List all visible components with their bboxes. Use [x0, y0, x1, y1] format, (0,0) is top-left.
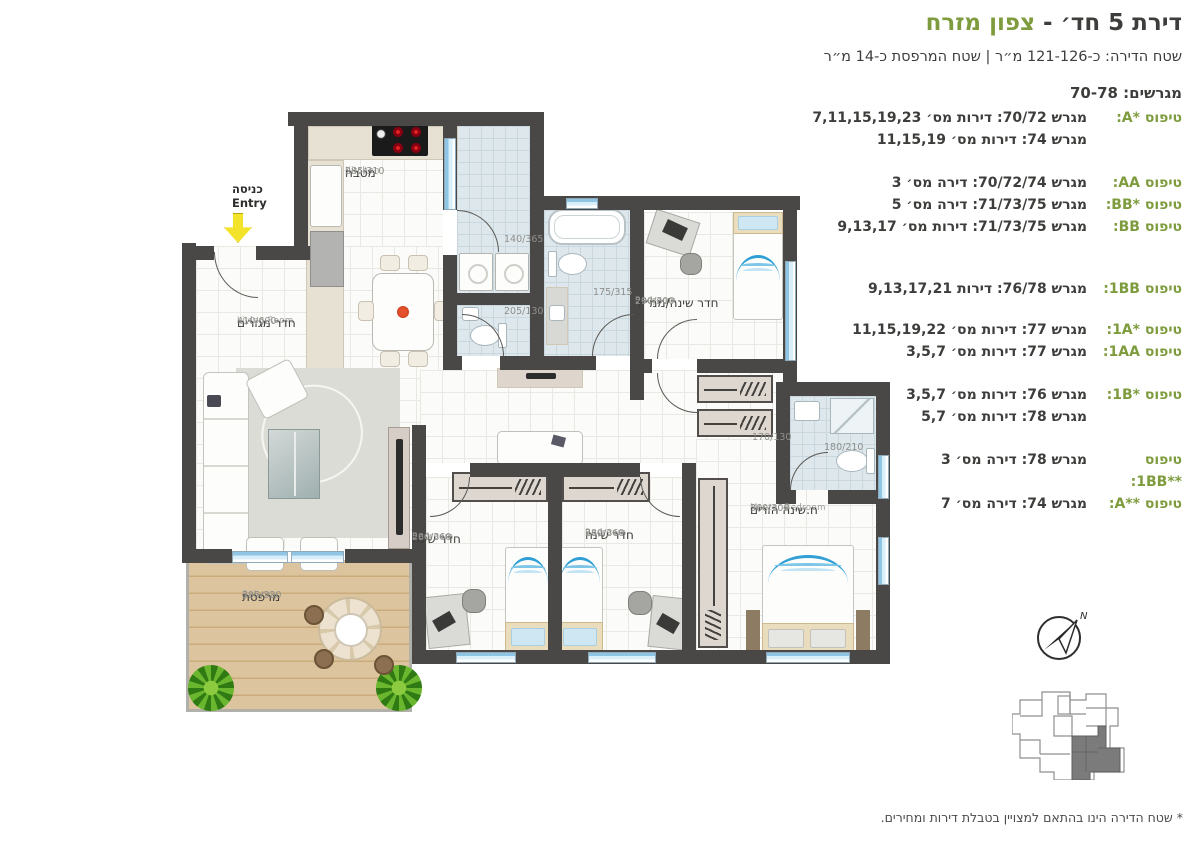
desk-chair — [628, 591, 652, 615]
type-label: טיפוס *BB: — [1096, 194, 1182, 216]
wall — [682, 463, 696, 664]
bed-pillow — [738, 216, 778, 230]
room-dims: 205/130 — [504, 306, 543, 317]
stove-icon — [372, 124, 428, 156]
coffee-table — [268, 429, 320, 499]
floor-plan: כניסה Entry Kitchen מטבח 285/310 140/365… — [180, 105, 900, 730]
wall — [548, 463, 562, 664]
entry-label-en: Entry — [232, 197, 267, 211]
title-prefix: דירת 5 חד׳ - — [1043, 10, 1182, 36]
wall — [697, 359, 797, 373]
window — [456, 652, 516, 663]
wall — [443, 356, 462, 370]
window — [444, 138, 456, 210]
window — [785, 261, 796, 361]
wall — [294, 113, 308, 260]
page-title: דירת 5 חד׳ - צפון מזרח — [762, 10, 1182, 38]
type-label: טיפוס 1BB: — [1096, 278, 1182, 300]
type-label: טיפוס **A: — [1096, 493, 1182, 515]
type-label: טיפוס *A: — [1096, 107, 1182, 151]
entry-arrow-icon — [224, 213, 252, 243]
patio-chair — [304, 605, 324, 625]
sofa-pillow — [207, 395, 221, 407]
desk-chair — [462, 589, 486, 613]
wall — [776, 382, 790, 504]
toilet-icon — [558, 253, 587, 275]
dryer — [495, 253, 529, 291]
type-label: טיפוס AA: — [1096, 172, 1182, 194]
bedside-bench — [856, 610, 870, 652]
room-dims: 395/330 — [242, 591, 281, 602]
table-flowers — [397, 306, 409, 318]
wall — [345, 549, 426, 563]
washer — [459, 253, 493, 291]
bed-pillow — [810, 629, 846, 648]
bed-pillow — [563, 628, 597, 646]
plant-icon — [188, 665, 234, 711]
desk-chair — [680, 253, 702, 275]
page: { "header": { "title_prefix": "דירת 5 חד… — [0, 0, 1191, 842]
shower — [830, 398, 874, 434]
dining-chair — [358, 301, 374, 321]
room-dims: 285/310 — [345, 167, 384, 178]
compass-icon: N — [1032, 606, 1092, 666]
wall — [443, 293, 544, 305]
dining-chair — [380, 255, 400, 271]
type-label: טיפוס *1B: — [1096, 384, 1182, 428]
wardrobe — [698, 478, 728, 648]
entry-label: כניסה Entry — [200, 183, 264, 197]
key-plan — [1012, 682, 1130, 780]
type-label: טיפוס *1A: — [1096, 319, 1182, 341]
patio-table — [334, 613, 368, 647]
wall — [256, 246, 310, 260]
oven-tower — [310, 231, 344, 287]
room-dims: 175/315 — [593, 287, 632, 298]
tv-screen — [396, 439, 403, 535]
room-dims: 170/130 — [752, 432, 791, 443]
mbath-sink — [794, 401, 820, 421]
bath-sink — [549, 305, 565, 321]
room-dims: 360/300 — [750, 504, 789, 515]
window — [878, 537, 889, 585]
title-highlight: צפון מזרח — [926, 10, 1035, 36]
wall — [776, 490, 796, 504]
dining-chair — [408, 351, 428, 367]
room-dims: 180/210 — [824, 442, 863, 453]
room-dims: 140/365 — [504, 234, 543, 245]
window — [566, 198, 598, 209]
lots-heading: מגרשים: 70-78 — [762, 84, 1182, 102]
type-label: טיפוס 1AA: — [1096, 341, 1182, 363]
entry-label-he: כניסה — [232, 183, 263, 197]
toilet-tank — [548, 251, 557, 277]
dining-chair — [408, 255, 428, 271]
wall — [182, 243, 196, 563]
closet — [697, 375, 773, 403]
room-dims: 280/360 — [412, 533, 451, 544]
type-label: טיפוס BB: — [1096, 216, 1182, 238]
wall — [470, 463, 640, 477]
wall — [876, 390, 890, 664]
patio-chair — [314, 649, 334, 669]
patio-chair — [374, 655, 394, 675]
wall — [288, 112, 544, 126]
bed-pillow — [511, 628, 545, 646]
apartment-area-subtitle: שטח הדירה: כ-121-126 מ״ר | שטח המרפסת כ-… — [762, 49, 1182, 65]
toilet-icon — [836, 450, 868, 472]
compass-north-label: N — [1080, 611, 1088, 622]
bed-pillow — [768, 629, 804, 648]
wall — [443, 255, 457, 368]
footnote: * שטח הדירה הינו בהתאם למצויין בטבלת דיר… — [881, 810, 1183, 825]
wall — [500, 356, 596, 370]
bathtub — [548, 209, 626, 245]
hall-tv — [526, 373, 556, 379]
window — [588, 652, 656, 663]
dining-chair — [380, 351, 400, 367]
window — [766, 652, 850, 663]
wall — [182, 549, 232, 563]
wall — [630, 359, 652, 373]
type-label: טיפוס **1BB: — [1096, 449, 1182, 493]
room-dims: 290/300 — [635, 297, 674, 308]
toilet-tank — [866, 448, 875, 474]
wall — [790, 382, 890, 396]
room-dims: 280/360 — [585, 529, 624, 540]
window — [878, 455, 889, 499]
fridge — [310, 165, 342, 227]
loveseat — [497, 431, 583, 465]
balcony-slider-window — [232, 551, 344, 563]
bedside-bench — [746, 610, 760, 652]
room-dims: 410/600 — [237, 317, 276, 328]
